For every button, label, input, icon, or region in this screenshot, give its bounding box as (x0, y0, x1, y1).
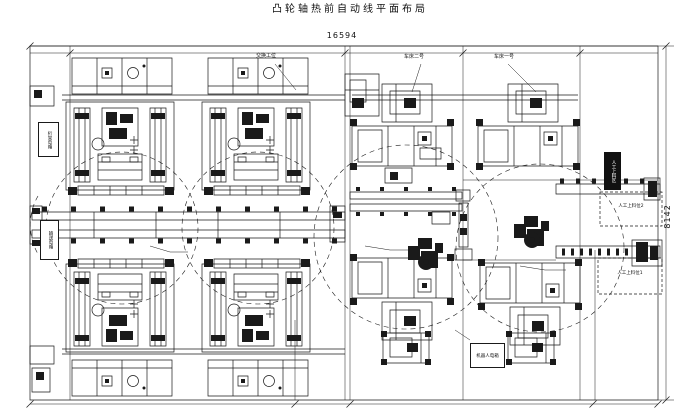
machining-center-top-2 (202, 58, 310, 195)
main-conveyor (30, 206, 345, 246)
label-manual-load-pos-2: 人工上料位2 (600, 205, 662, 210)
transfer-rails (350, 178, 662, 266)
machining-center-top-1 (66, 58, 174, 195)
gantry-cabinet-box: 桁架电箱 (38, 122, 59, 157)
robot-center (408, 238, 443, 270)
label-lathe-2: 车床二号 (404, 55, 424, 61)
drawing-title: 凸轮轴热前自动线平面布局 (0, 4, 700, 15)
small-machine-bottom-center (381, 331, 431, 365)
dimension-right-height: 8142 (664, 204, 673, 228)
label-exchange-station: 交换工位 (256, 54, 276, 60)
lathe-2-machine (350, 84, 454, 170)
lathe-bottom-right (478, 259, 582, 345)
gantry-rails (62, 95, 578, 354)
small-machine-bottom-right (506, 331, 556, 365)
label-manual-load-area: 人工上料区 (604, 152, 621, 190)
robot-right (514, 216, 549, 248)
robot-cabinet-box: 机器人电箱 (470, 343, 505, 368)
layout-drawing (0, 0, 700, 417)
machining-center-bottom-2 (202, 259, 310, 396)
cad-floorplan-page: 凸轮轴热前自动线平面布局 16594 8142 交换工位 车床二号 车床一号 人… (0, 0, 700, 417)
label-robot-cabinet: 机器人电箱 (476, 353, 499, 359)
lathe-1-machine (476, 84, 580, 170)
machining-center-bottom-1 (66, 259, 174, 396)
conveyor-cabinet-box: 输送电箱 (40, 220, 59, 260)
plant-border (30, 46, 658, 400)
label-manual-load-pos-1: 人工上料位1 (598, 272, 662, 277)
dimension-top-width: 16594 (312, 32, 372, 41)
label-lathe-1: 车床一号 (494, 55, 514, 61)
lathe-bottom-left (350, 254, 454, 340)
